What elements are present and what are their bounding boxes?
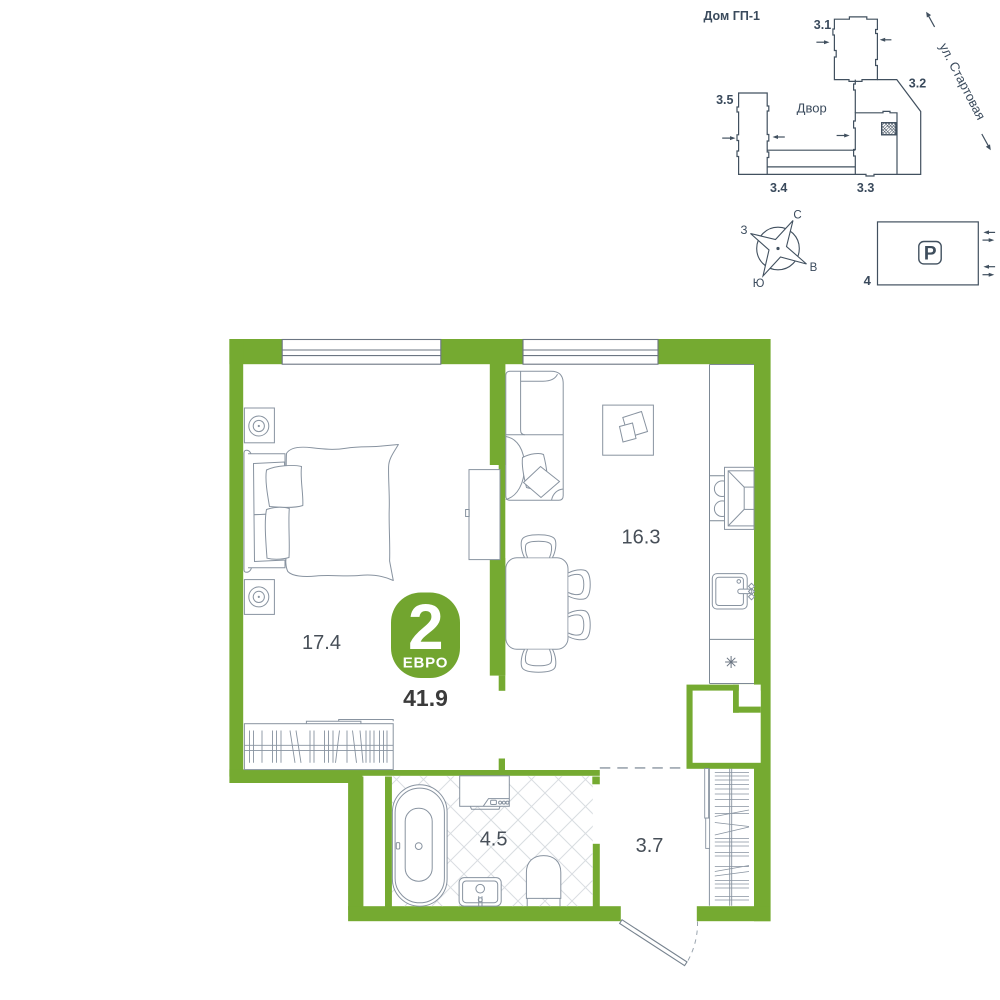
svg-text:В: В bbox=[810, 262, 818, 274]
svg-text:17.4: 17.4 bbox=[302, 632, 341, 654]
svg-text:2: 2 bbox=[408, 591, 444, 663]
svg-text:З: З bbox=[741, 225, 748, 237]
svg-text:3.5: 3.5 bbox=[716, 93, 733, 107]
svg-text:4.5: 4.5 bbox=[480, 829, 508, 851]
svg-text:3.4: 3.4 bbox=[770, 181, 787, 195]
svg-text:С: С bbox=[793, 210, 801, 222]
svg-text:3.1: 3.1 bbox=[814, 18, 831, 32]
svg-text:P: P bbox=[924, 244, 937, 265]
svg-text:3.3: 3.3 bbox=[857, 181, 874, 195]
svg-text:41.9: 41.9 bbox=[403, 685, 448, 711]
svg-text:Ю: Ю bbox=[753, 278, 765, 290]
svg-text:Дом ГП-1: Дом ГП-1 bbox=[704, 9, 760, 23]
svg-text:Двор: Двор bbox=[797, 101, 827, 116]
svg-text:16.3: 16.3 bbox=[622, 527, 661, 549]
svg-text:4: 4 bbox=[864, 273, 872, 288]
svg-text:3.2: 3.2 bbox=[909, 77, 926, 91]
svg-text:3.7: 3.7 bbox=[636, 835, 664, 857]
svg-text:ЕВРО: ЕВРО bbox=[403, 654, 449, 671]
